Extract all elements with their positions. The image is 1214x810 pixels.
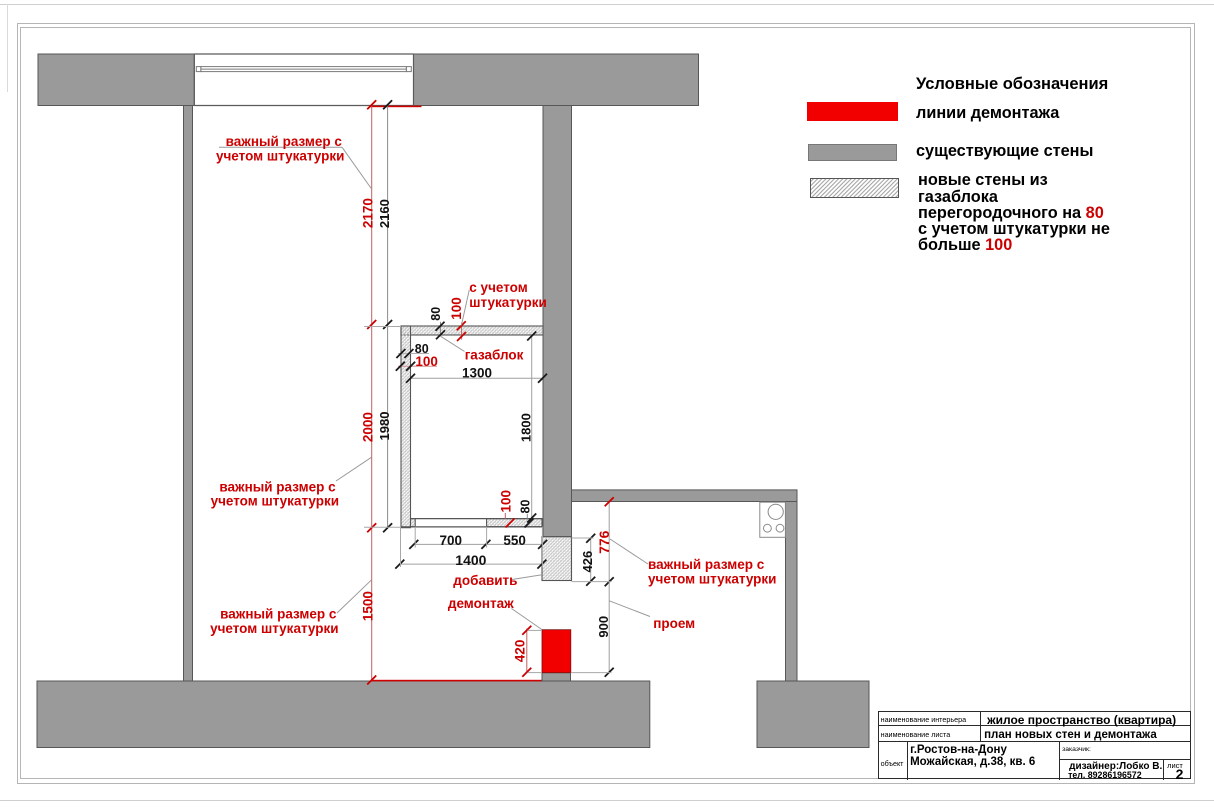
svg-text:100: 100 (449, 297, 464, 320)
svg-text:учетом штукатурки: учетом штукатурки (211, 494, 339, 509)
svg-text:2170: 2170 (361, 198, 376, 228)
svg-text:учетом штукатурки: учетом штукатурки (648, 571, 776, 586)
svg-text:1400: 1400 (455, 552, 486, 568)
svg-text:учетом штукатурки: учетом штукатурки (210, 621, 338, 636)
svg-text:газаблок: газаблок (465, 348, 524, 363)
svg-text:1980: 1980 (377, 412, 392, 441)
svg-text:демонтаж: демонтаж (448, 596, 514, 611)
svg-text:2000: 2000 (361, 412, 376, 442)
svg-text:с учетом: с учетом (469, 280, 527, 295)
svg-text:важный размер с: важный размер с (648, 557, 765, 572)
svg-text:1800: 1800 (518, 413, 533, 442)
svg-text:1500: 1500 (361, 591, 376, 621)
svg-text:важный размер с: важный размер с (219, 479, 336, 494)
svg-text:550: 550 (503, 533, 526, 548)
svg-text:1300: 1300 (462, 366, 492, 381)
svg-text:добавить: добавить (453, 573, 517, 588)
svg-text:100: 100 (415, 354, 438, 369)
svg-text:учетом штукатурки: учетом штукатурки (216, 148, 344, 163)
svg-text:700: 700 (440, 533, 463, 548)
svg-text:важный размер с: важный размер с (220, 607, 337, 622)
svg-text:2160: 2160 (377, 199, 392, 228)
svg-text:80: 80 (429, 307, 443, 321)
svg-text:80: 80 (519, 500, 533, 514)
svg-text:важный размер с: важный размер с (226, 134, 343, 149)
svg-text:штукатурки: штукатурки (469, 295, 547, 310)
svg-text:776: 776 (596, 530, 612, 554)
svg-text:100: 100 (499, 490, 514, 513)
svg-text:420: 420 (513, 640, 528, 663)
svg-text:426: 426 (580, 551, 595, 573)
svg-text:проем: проем (653, 616, 695, 631)
svg-text:900: 900 (596, 616, 611, 638)
